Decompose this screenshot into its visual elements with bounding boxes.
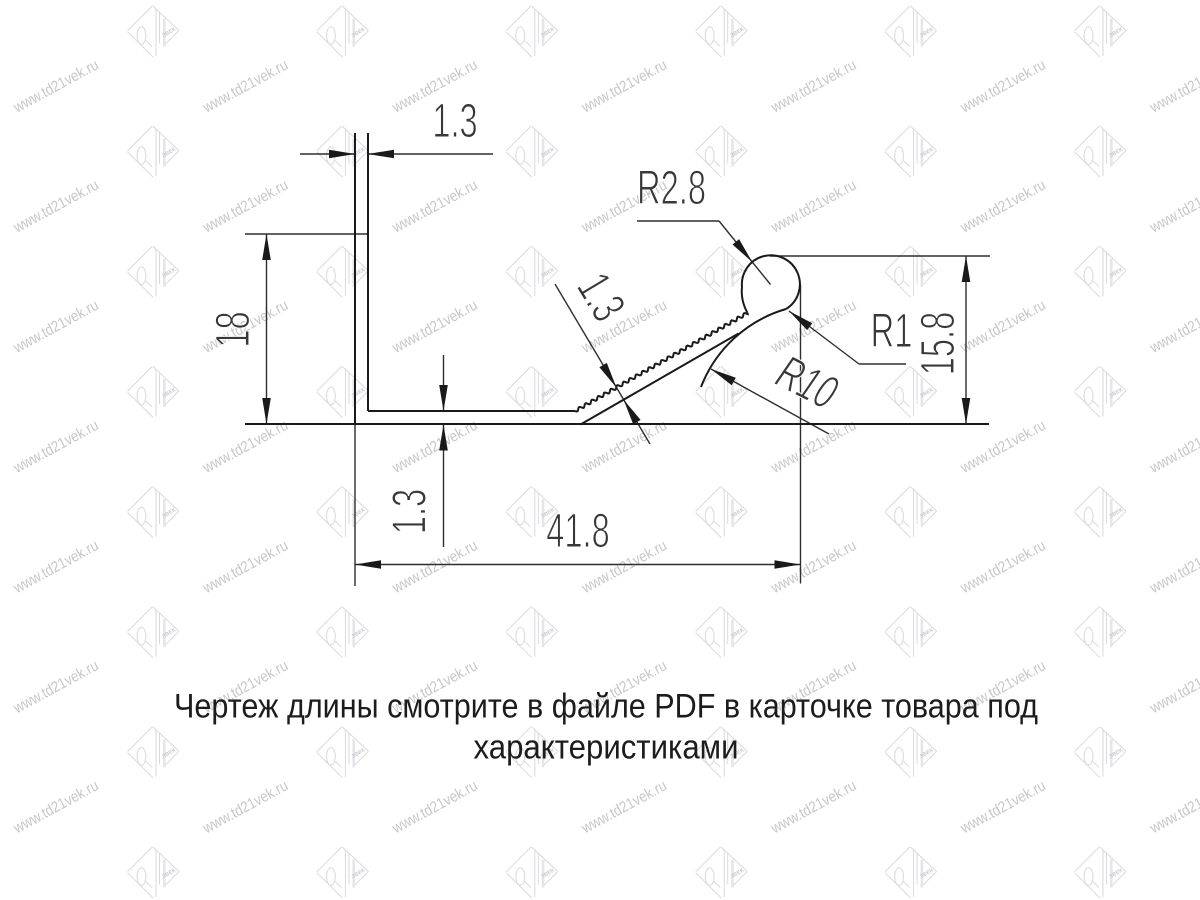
svg-text:Чертеж длины смотрите в файле: Чертеж длины смотрите в файле PDF в карт… <box>174 688 1038 726</box>
svg-text:характеристиками: характеристиками <box>474 729 739 767</box>
svg-text:R2.8: R2.8 <box>637 161 706 215</box>
svg-text:R1: R1 <box>871 304 913 358</box>
svg-text:41.8: 41.8 <box>546 504 610 558</box>
svg-text:15.8: 15.8 <box>911 312 965 376</box>
svg-text:1.3: 1.3 <box>432 94 477 148</box>
svg-text:18: 18 <box>206 311 260 347</box>
svg-text:1.3: 1.3 <box>382 489 436 534</box>
